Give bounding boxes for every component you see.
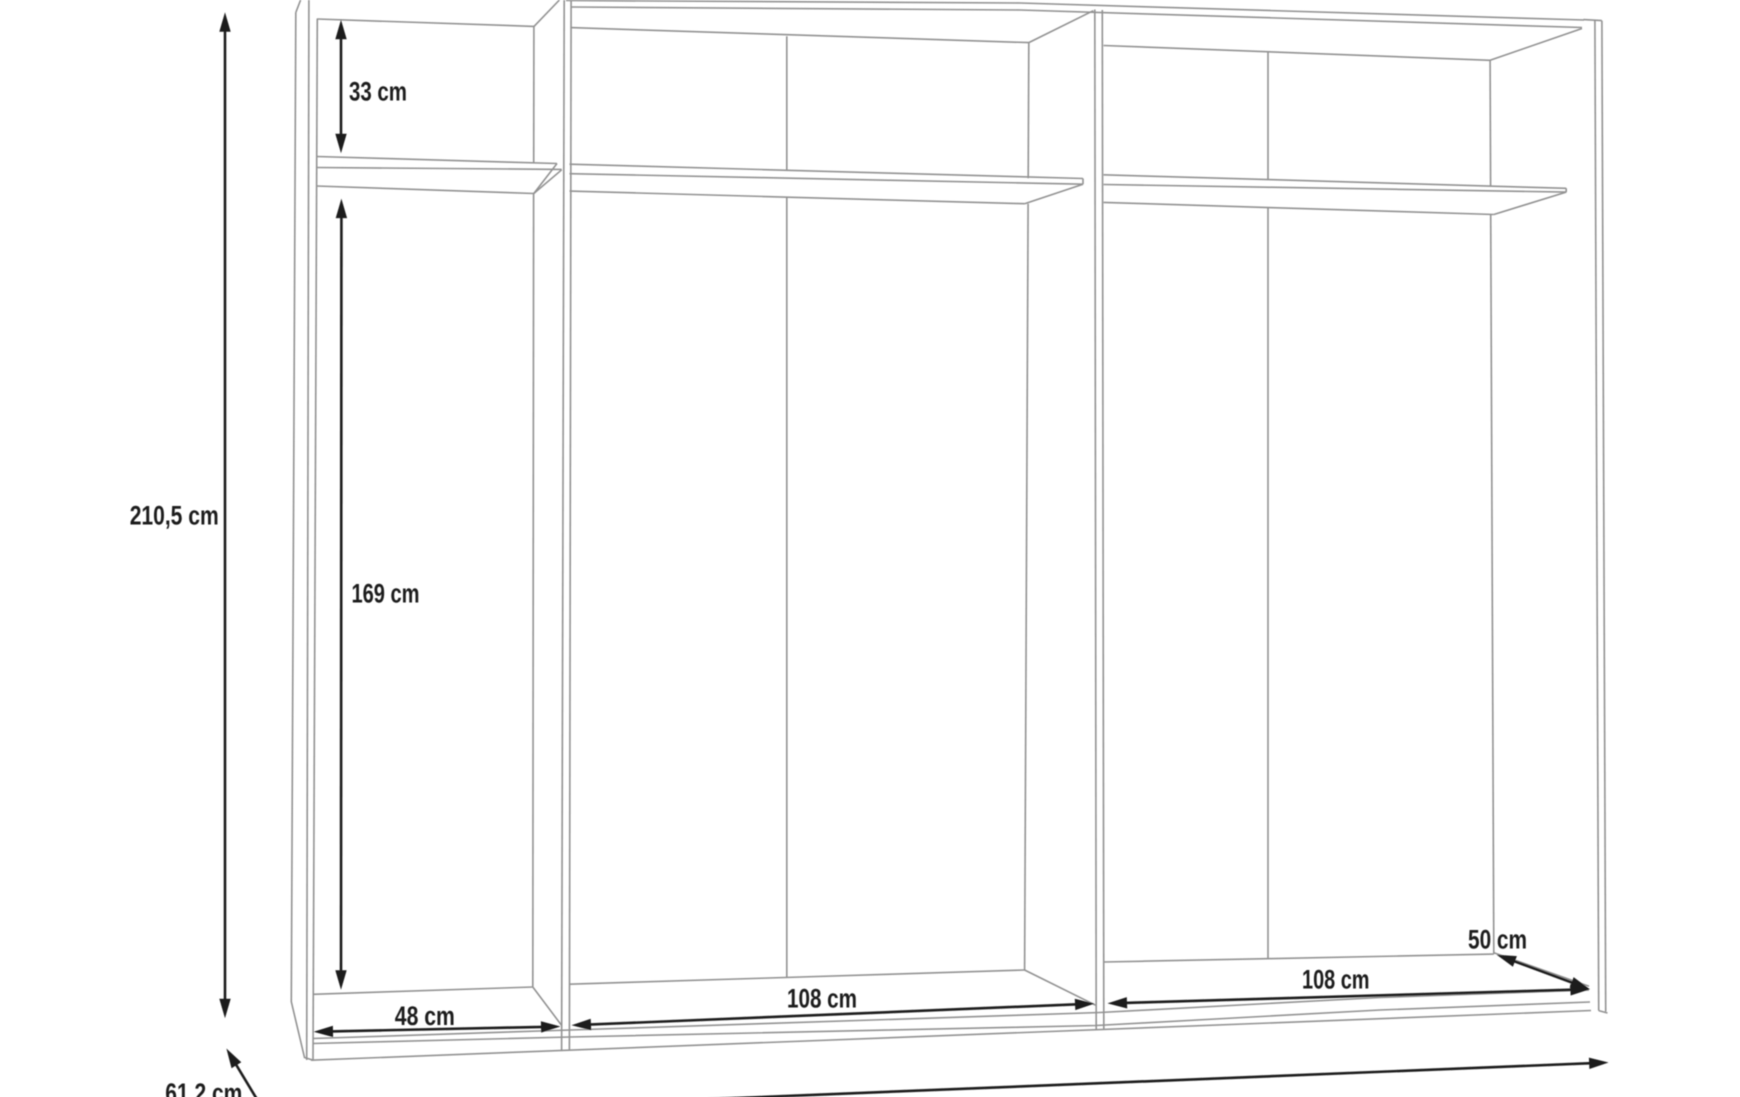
svg-text:48 cm: 48 cm [395, 1001, 455, 1031]
svg-text:169 cm: 169 cm [352, 579, 420, 609]
svg-text:61,2 cm: 61,2 cm [165, 1078, 242, 1097]
svg-text:108 cm: 108 cm [787, 984, 857, 1014]
svg-text:210,5 cm: 210,5 cm [130, 501, 219, 531]
svg-text:108 cm: 108 cm [1302, 965, 1370, 995]
svg-text:50 cm: 50 cm [1468, 925, 1527, 955]
svg-text:33 cm: 33 cm [349, 77, 407, 107]
